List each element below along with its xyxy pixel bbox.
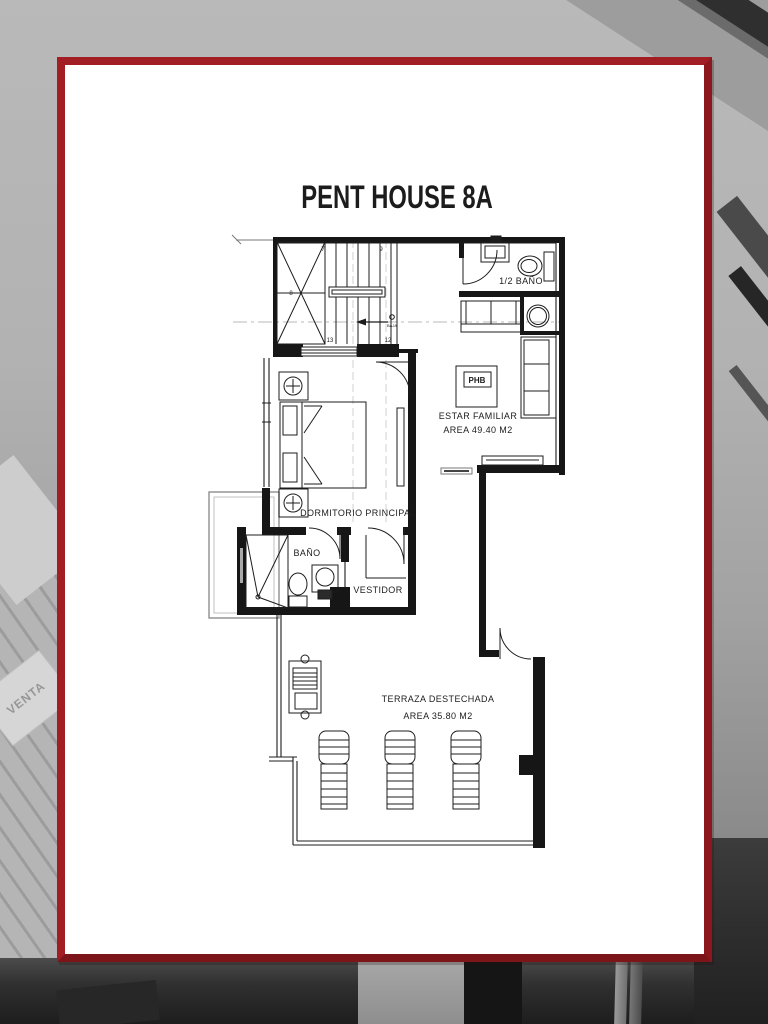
shower <box>246 535 288 608</box>
pillow <box>283 406 297 435</box>
sun-lounger <box>319 731 349 809</box>
plan-title: PENT HOUSE 8A <box>301 179 493 216</box>
bbq-grill <box>289 655 321 719</box>
stair-number: 13 <box>327 338 334 344</box>
door-arc <box>368 528 404 564</box>
door-arc <box>376 362 410 396</box>
stairs <box>277 242 397 344</box>
terrace-area: AREA 35.80 M2 <box>403 711 472 721</box>
tv-shelf <box>397 408 404 486</box>
walk-in-closet <box>366 528 406 578</box>
sectional-sofa <box>521 337 556 418</box>
side-table <box>527 305 549 327</box>
shower-window <box>240 548 243 583</box>
stair-number: 9 <box>379 247 383 253</box>
stair-number: 8 <box>289 291 293 297</box>
family-room <box>441 301 556 474</box>
toilet-icon <box>289 573 307 595</box>
master-bedroom <box>279 362 410 517</box>
terrace-label: TERRAZA DESTECHADA <box>382 694 495 704</box>
wardrobe-band <box>301 347 357 356</box>
toilet-icon <box>518 256 542 276</box>
door-arc <box>463 250 497 284</box>
family-room-label: ESTAR FAMILIAR <box>439 411 518 421</box>
phb-tag: PHB <box>469 376 486 385</box>
stair-direction-label: BAJA <box>387 323 397 328</box>
screenshot-root: VENTA PENT HOUSE 8A <box>0 0 768 1024</box>
bathroom <box>246 528 340 608</box>
bathroom-label: BAÑO <box>293 548 320 558</box>
plan-walls <box>237 237 565 848</box>
family-room-area: AREA 49.40 M2 <box>443 425 512 435</box>
stair-number: 12 <box>385 338 392 344</box>
walk-in-closet-label: VESTIDOR <box>353 585 402 595</box>
floor-plan: PENT HOUSE 8A <box>0 0 768 1024</box>
pillow <box>283 453 297 482</box>
master-bedroom-label: DORMITORIO PRINCIPAL <box>300 508 416 518</box>
sun-lounger <box>385 731 415 809</box>
door-arc <box>500 628 531 659</box>
sun-lounger <box>451 731 481 809</box>
half-bath-label: 1/2 BAÑO <box>499 276 543 286</box>
